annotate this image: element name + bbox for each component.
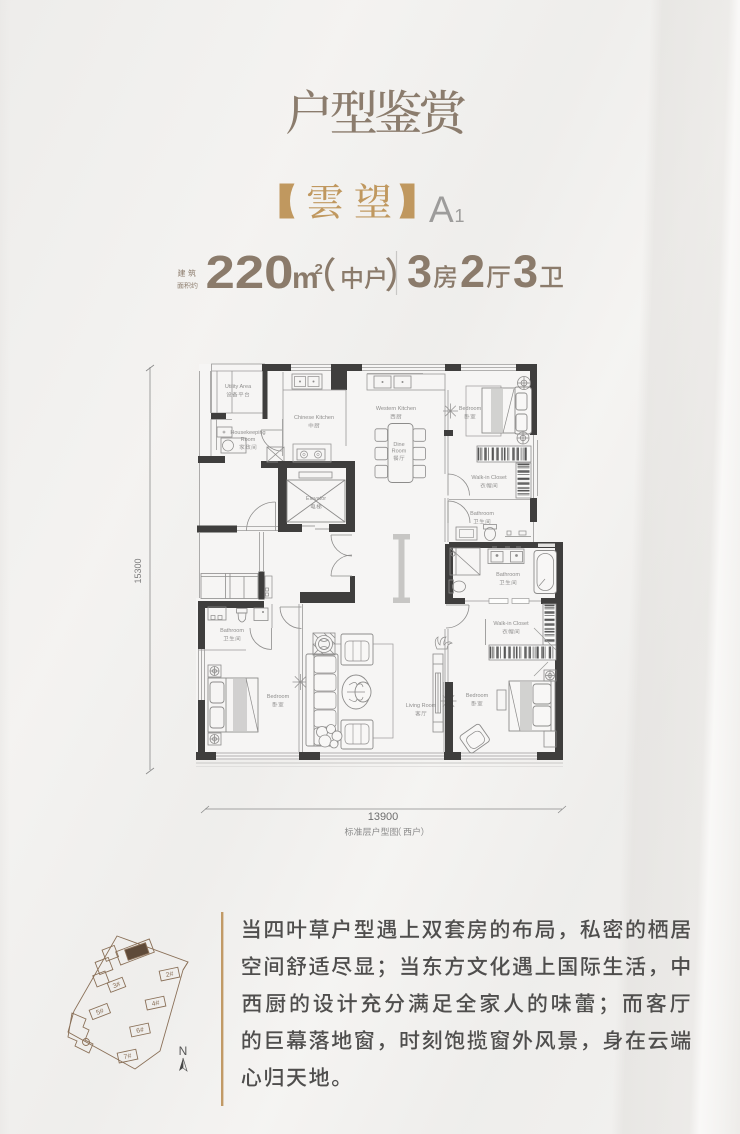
svg-text:Walk-in Closet: Walk-in Closet — [493, 621, 529, 627]
svg-text:Room: Room — [241, 437, 256, 443]
svg-text:Dine: Dine — [393, 442, 404, 448]
svg-text:Walk-in Closet: Walk-in Closet — [471, 475, 507, 481]
svg-text:Western Kitchen: Western Kitchen — [376, 406, 416, 412]
svg-text:Bedroom: Bedroom — [466, 693, 489, 699]
svg-text:4#: 4# — [151, 1000, 160, 1008]
svg-text:Bedroom: Bedroom — [267, 694, 290, 700]
svg-text:2: 2 — [315, 261, 323, 278]
svg-text:3: 3 — [407, 246, 432, 297]
svg-text:6#: 6# — [136, 1027, 145, 1035]
svg-text:Room: Room — [392, 449, 407, 455]
svg-text:2#: 2# — [165, 971, 174, 979]
svg-text:Bathroom: Bathroom — [220, 628, 244, 634]
svg-text:N: N — [179, 1044, 188, 1058]
svg-text:220: 220 — [206, 246, 294, 298]
svg-text:Housekeeping: Housekeeping — [230, 430, 265, 436]
svg-text:2: 2 — [460, 246, 485, 297]
svg-text:Bathroom: Bathroom — [496, 572, 520, 578]
svg-text:Bedroom: Bedroom — [459, 406, 482, 412]
svg-text:7#: 7# — [123, 1053, 132, 1061]
svg-text:Living Room: Living Room — [406, 703, 437, 709]
svg-text:Utility Area: Utility Area — [225, 384, 252, 390]
svg-text:1: 1 — [455, 206, 465, 226]
svg-text:A: A — [429, 189, 454, 230]
svg-text:Bathroom: Bathroom — [470, 511, 494, 517]
svg-text:15300: 15300 — [133, 558, 143, 583]
svg-text:Chinese Kitchen: Chinese Kitchen — [294, 415, 334, 421]
svg-text:Elevator: Elevator — [306, 496, 326, 502]
svg-text:3: 3 — [513, 246, 538, 297]
svg-text:13900: 13900 — [368, 811, 399, 823]
